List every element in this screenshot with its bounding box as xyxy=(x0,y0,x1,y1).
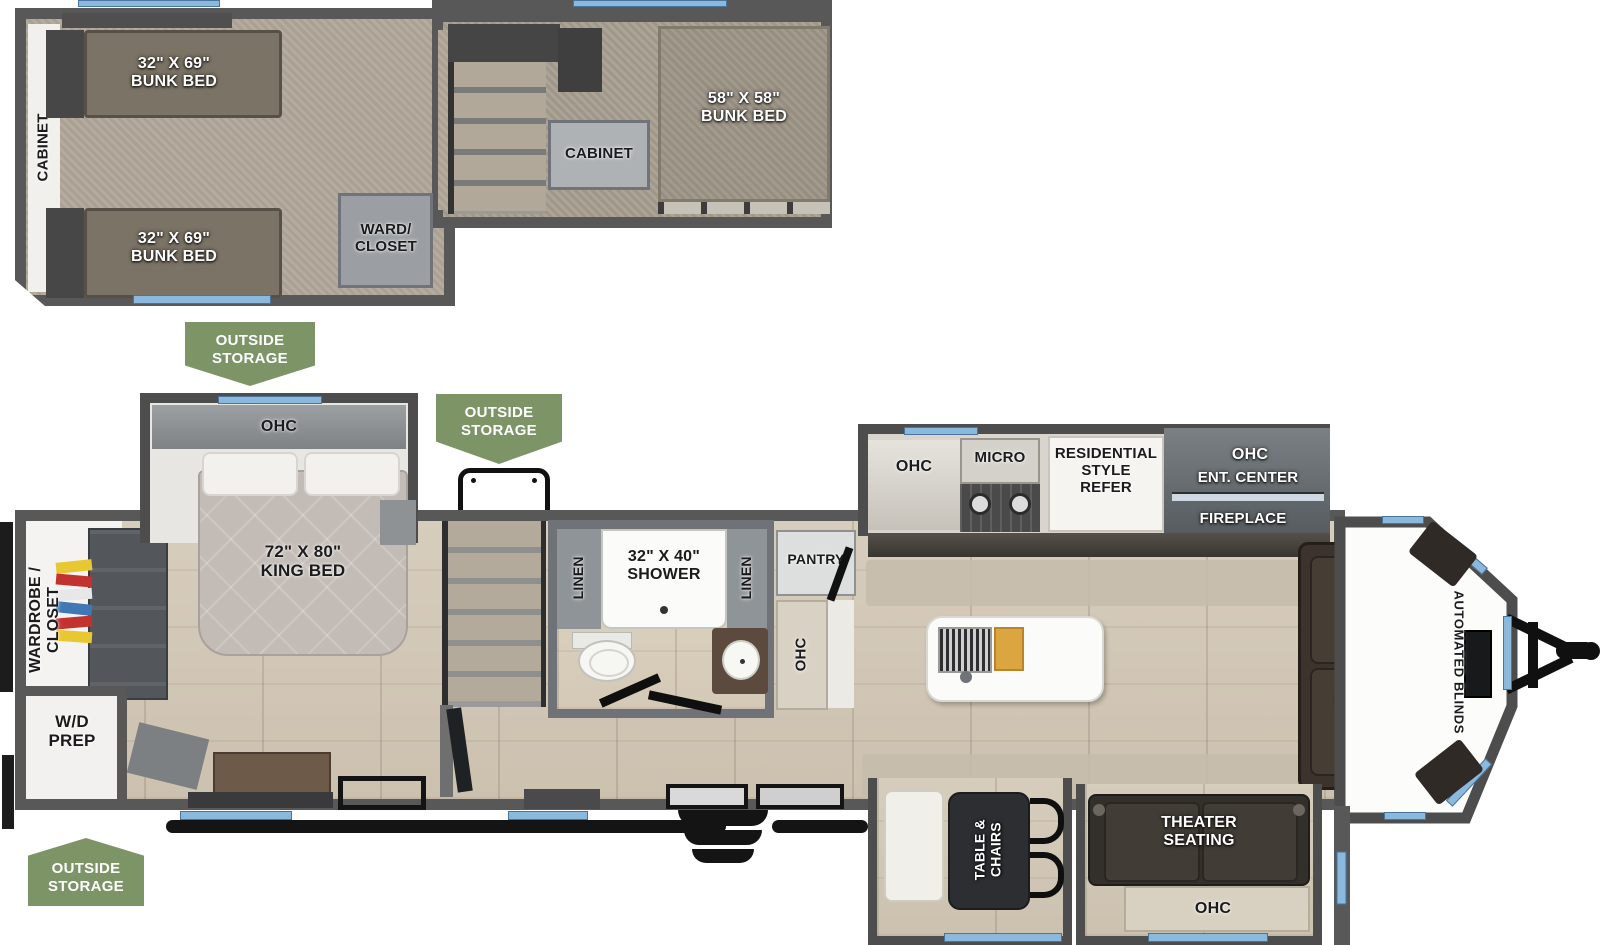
stove xyxy=(960,484,1040,532)
kitchen-window xyxy=(904,427,978,435)
loft-stairs xyxy=(448,62,546,214)
bedroom-nightstand xyxy=(380,500,416,545)
ent-shelf xyxy=(1172,492,1324,501)
loft-railing xyxy=(658,202,830,214)
microwave-label: MICRO xyxy=(960,450,1040,467)
kitchen-ohc xyxy=(868,440,960,530)
loft-window-top-right xyxy=(573,0,727,7)
rear-bumper xyxy=(0,522,13,692)
cap-window-front xyxy=(1503,616,1512,690)
stair-landing-cabinet xyxy=(448,24,560,62)
king-bed-pillow-right xyxy=(304,452,400,496)
bedroom-slide-window xyxy=(218,396,322,404)
island-cutting-board xyxy=(994,627,1024,671)
bedroom-bench-frame xyxy=(338,776,426,810)
cap-window-bottom-wall xyxy=(1384,812,1426,820)
dinette-chair-bottom xyxy=(1030,852,1064,898)
bedroom-bottom-window xyxy=(180,811,292,820)
kitchen-runner-mat xyxy=(866,560,1328,606)
dinette-window xyxy=(944,933,1062,942)
loft-window-top-left xyxy=(78,0,220,7)
bunk-bed-top-headboard xyxy=(46,30,84,118)
refrigerator-label: RESIDENTIALSTYLEREFER xyxy=(1048,446,1164,496)
entry-mat xyxy=(524,789,600,809)
outside-storage-badge-center: OUTSIDESTORAGE xyxy=(436,394,562,464)
hitch-icon xyxy=(1504,614,1600,694)
kitchen-ohc-label: OHC xyxy=(868,458,960,476)
loft-cabinet-box-label: CABINET xyxy=(550,146,648,163)
stair-top-cabinet xyxy=(558,28,602,92)
bunk-bed-bottom-label: 32" X 69"BUNK BED xyxy=(94,230,254,266)
cap-tv xyxy=(1464,630,1492,698)
wd-prep-label: W/DPREP xyxy=(28,712,116,750)
entry-steps-icon xyxy=(678,810,768,876)
wd-room-wall-h xyxy=(20,686,126,696)
rv-floorplan-diagram: CABINET 32" X 69"BUNK BED 32" X 69"BUNK … xyxy=(0,0,1600,945)
island-sink xyxy=(938,627,992,673)
main-stairs xyxy=(442,521,546,707)
dinette-bench xyxy=(884,790,944,902)
ent-center-label: ENT. CENTER xyxy=(1168,470,1328,487)
bath-sink xyxy=(722,640,760,680)
hall-bottom-window xyxy=(508,811,588,820)
bedroom-ohc-label: OHC xyxy=(152,418,406,436)
toilet xyxy=(578,640,636,682)
king-bed-label: 72" X 80"KING BED xyxy=(218,542,388,580)
fireplace-label: FIREPLACE xyxy=(1168,511,1318,528)
wd-room-wall-v xyxy=(117,686,127,799)
hall-ohc-label: OHC xyxy=(794,624,811,684)
bedroom-dresser-shelf xyxy=(188,792,333,808)
ent-ohc-label: OHC xyxy=(1180,446,1320,464)
loft-ward-closet-label: WARD/CLOSET xyxy=(340,222,432,256)
outside-storage-badge-bedroom: OUTSIDESTORAGE xyxy=(185,322,315,386)
awning-rail-left xyxy=(166,820,726,833)
bunk-bed-top-label: 32" X 69"BUNK BED xyxy=(94,55,254,91)
awning-rail-right xyxy=(772,820,868,833)
entry-door-right xyxy=(756,784,844,809)
shower-drain xyxy=(660,606,668,614)
linen-right-label: LINEN xyxy=(739,545,755,611)
hall-counter xyxy=(828,600,854,708)
linen-left-label: LINEN xyxy=(571,545,587,611)
cap-window-top-wall xyxy=(1382,516,1424,524)
shower-label: 32" X 40"SHOWER xyxy=(603,548,725,584)
theater-seating-label: THEATERSEATING xyxy=(1144,814,1254,850)
dinette-table-label: TABLE &CHAIRS xyxy=(972,804,1003,896)
wardrobe-closet-label: WARDROBE /CLOSET xyxy=(27,545,63,695)
bunk-bed-front-label: 58" X 58"BUNK BED xyxy=(662,90,826,126)
bunk-bed-bottom-headboard xyxy=(46,208,84,298)
entry-door-left xyxy=(666,784,748,809)
automated-blinds-label: AUTOMATED BLINDS xyxy=(1451,587,1466,737)
king-bed-pillow-left xyxy=(202,452,298,496)
theater-ohc-label: OHC xyxy=(1178,900,1248,918)
loft-window-bottom xyxy=(133,295,271,304)
island-faucet xyxy=(960,671,972,683)
theater-window xyxy=(1148,933,1268,942)
bedroom-closet xyxy=(88,528,168,700)
kitchen-counter xyxy=(868,533,1330,557)
outside-storage-badge-rear: OUTSIDESTORAGE xyxy=(28,838,144,906)
dinette-chair-top xyxy=(1030,798,1064,844)
loft-overhead-band xyxy=(62,13,232,28)
cap-side-window xyxy=(1337,852,1346,904)
rear-stabilizer xyxy=(2,755,14,829)
